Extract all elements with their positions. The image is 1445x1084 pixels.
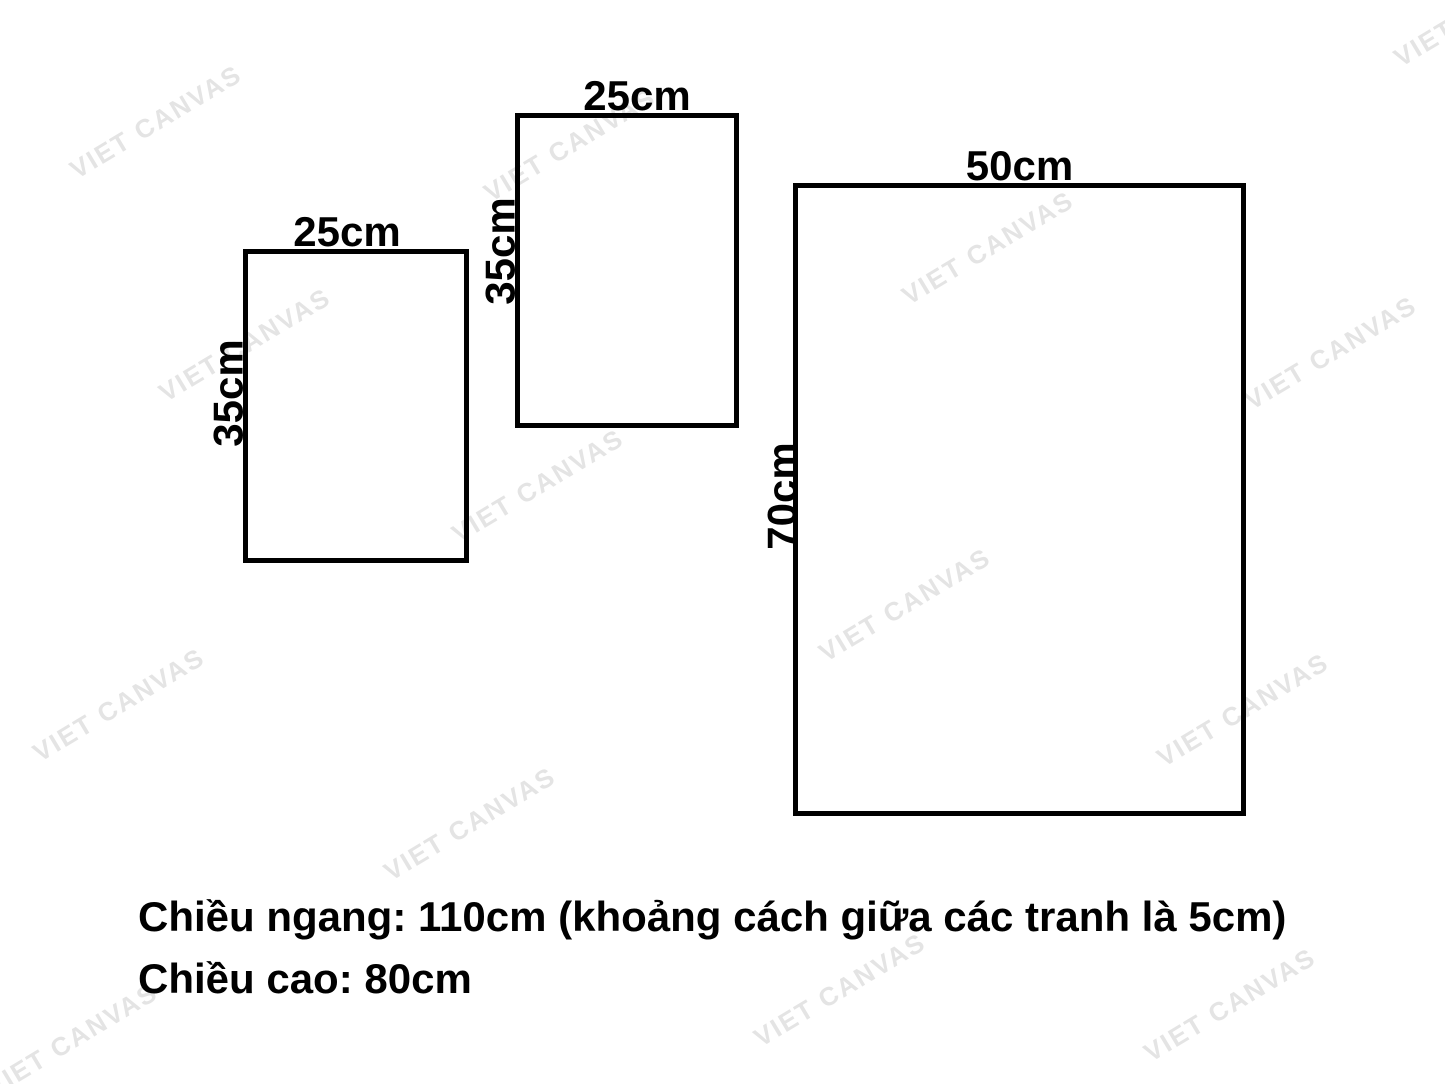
frame-height-label: 35cm bbox=[479, 197, 521, 304]
frame-width-label: 50cm bbox=[798, 145, 1241, 187]
watermark: VIET CANVAS bbox=[64, 59, 247, 186]
watermark: VIET CANVAS bbox=[378, 761, 561, 888]
caption-horizontal-size: Chiều ngang: 110cm (khoảng cách giữa các… bbox=[138, 886, 1286, 948]
frame-width-label: 25cm bbox=[239, 211, 455, 253]
frame-width-label: 25cm bbox=[530, 75, 744, 117]
watermark: VIET CANVAS bbox=[446, 423, 629, 550]
frame-height-label: 70cm bbox=[761, 442, 803, 549]
frame-large-right: 50cm 70cm bbox=[793, 183, 1246, 816]
watermark: VIET CANVAS bbox=[27, 642, 210, 769]
frame-height-label: 35cm bbox=[207, 339, 249, 446]
size-diagram: VIET CANVAS VIET CANVAS VIET CANVAS VIET… bbox=[0, 0, 1445, 1084]
frame-small-left: 25cm 35cm bbox=[243, 249, 469, 563]
watermark: VIET CANVAS bbox=[1388, 0, 1445, 73]
watermark: VIET CANVAS bbox=[1239, 290, 1422, 417]
caption-vertical-size: Chiều cao: 80cm bbox=[138, 948, 1286, 1010]
size-caption: Chiều ngang: 110cm (khoảng cách giữa các… bbox=[138, 886, 1286, 1010]
frame-small-top: 25cm 35cm bbox=[515, 113, 739, 428]
